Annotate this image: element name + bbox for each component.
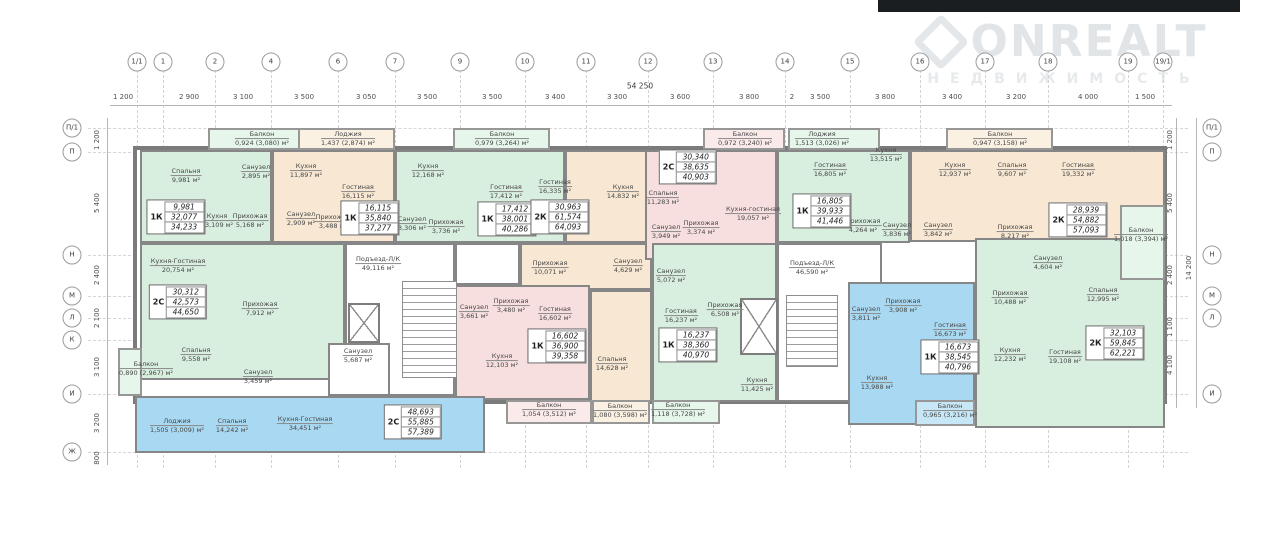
room-name: Прихожая [707, 301, 744, 310]
room-area: 1,437 (2,874) м² [321, 140, 375, 148]
room-area: 16,335 м² [538, 188, 572, 196]
apartment-type: 1К [922, 353, 938, 362]
apartment-type: 2С [386, 418, 401, 427]
area-value: 46,590 м² [789, 269, 835, 277]
room-label: Санузел3,836 м² [882, 221, 912, 239]
axis-right: Л [1203, 309, 1222, 328]
room-label: Санузел2,909 м² [286, 210, 316, 228]
room-area: 3,374 м² [683, 229, 720, 237]
room-label: Санузел4,629 м² [613, 257, 643, 275]
room-name: Прихожая [428, 218, 465, 227]
room-name: Лоджия [795, 130, 849, 139]
room-name: Санузел [397, 215, 427, 224]
room-label: Спальня12,995 м² [1087, 286, 1119, 304]
dim: 2 400 [1166, 265, 1174, 285]
room-label: Балкон1,018 (3,394) м² [1114, 226, 1168, 244]
dim: 2 [790, 93, 794, 101]
room-label: Санузел4,604 м² [1033, 254, 1063, 272]
room-name: Кухня [201, 212, 233, 221]
room-name: Кухня [486, 352, 518, 361]
room-name: Санузел [613, 257, 643, 266]
room-area: 12,232 м² [994, 356, 1026, 364]
room-name: Спальня [216, 417, 248, 426]
room-name: Кухня-гостиная [725, 205, 781, 214]
total-width: 54 250 [627, 82, 653, 91]
dim: 1 200 [1166, 130, 1174, 150]
room-label: Санузел5,687 м² [343, 347, 373, 365]
apartment-type: 2К [532, 213, 548, 222]
room-name: Спальня [171, 167, 202, 176]
room-name: Санузел [923, 221, 953, 230]
room-area: 3,908 м² [885, 307, 922, 315]
dimension-line [110, 105, 1172, 106]
room-area: 3,459 м² [243, 378, 273, 386]
room-name: Балкон [522, 401, 576, 410]
room-label: Прихожая8,217 м² [997, 223, 1034, 241]
dim: 3 300 [607, 93, 627, 101]
room-label: Кухня12,103 м² [486, 352, 518, 370]
room-name: Спальня [647, 189, 679, 198]
room-label: Санузел5,072 м² [656, 267, 686, 285]
room-area: 19,057 м² [725, 215, 781, 223]
room-label: Спальня11,283 м² [647, 189, 679, 207]
room-label: Прихожая10,488 м² [992, 289, 1029, 307]
room-label: Прихожая3,374 м² [683, 219, 720, 237]
dim: 5 400 [93, 193, 101, 213]
axis-left: Л [63, 309, 82, 328]
room-name: Балкон [1114, 226, 1168, 235]
apartment-stats: 2К28,93954,88257,093 [1048, 202, 1107, 237]
watermark-top-bar [878, 0, 1240, 12]
axis-right: М [1203, 287, 1222, 306]
room-area: 3,949 м² [651, 233, 681, 241]
room-name: Гостиная [341, 183, 375, 192]
room-area: 9,981 м² [171, 177, 202, 185]
room-area: 11,897 м² [290, 172, 322, 180]
axis-top: 2 [206, 53, 225, 72]
room-name: Санузел [343, 347, 373, 356]
room-label: Лоджия1,505 (3,009) м² [150, 417, 204, 435]
room-name: Прихожая [683, 219, 720, 228]
dim: 3 200 [1006, 93, 1026, 101]
room-label: Балкон0,979 (3,264) м² [475, 130, 529, 148]
room-name: Спальня [1087, 286, 1119, 295]
dim: 3 500 [294, 93, 314, 101]
room-label: Кухня-Гостиная20,754 м² [150, 257, 206, 275]
corridor [455, 243, 520, 285]
room-area: 2,909 м² [286, 220, 316, 228]
apartment-stats: 2К30,96361,57464,093 [530, 199, 589, 234]
dim: 3 200 [93, 413, 101, 433]
room-area: 10,071 м² [532, 269, 569, 277]
area-value: 49,116 м² [355, 265, 401, 273]
room-area: 16,805 м² [813, 171, 847, 179]
room-area: 1,513 (3,026) м² [795, 140, 849, 148]
axis-top: 6 [329, 53, 348, 72]
room-area: 1,018 (3,394) м² [1114, 236, 1168, 244]
room-area: 5,072 м² [656, 277, 686, 285]
room-name: Лоджия [321, 130, 375, 139]
axis-top: 17 [976, 53, 995, 72]
dim: 3 400 [942, 93, 962, 101]
room-name: Кухня-Гостиная [277, 415, 333, 424]
room-label: Кухня12,168 м² [412, 162, 444, 180]
apartment-stats: 2С30,34038,63540,903 [659, 149, 717, 184]
room-name: Санузел [882, 221, 912, 230]
room-label: Балкон1,118 (3,728) м² [651, 401, 705, 419]
dim: 3 800 [875, 93, 895, 101]
room-area: 20,754 м² [150, 267, 206, 275]
room-area: 1,118 (3,728) м² [651, 411, 705, 419]
axis-top: 9 [451, 53, 470, 72]
apartment-stats: 1К16,11535,84037,277 [340, 200, 399, 235]
room-label: Спальня9,558 м² [181, 346, 212, 364]
dim: 5 400 [1166, 193, 1174, 213]
room-area: 6,508 м² [707, 311, 744, 319]
dimension-line [107, 118, 108, 465]
room-label: Прихожая3,908 м² [885, 297, 922, 315]
room-area: 3,811 м² [851, 315, 881, 323]
room-name: Гостиная [933, 321, 967, 330]
apartment-stats: 1К16,23738,36040,970 [658, 327, 717, 362]
apartment-type: 1К [794, 207, 810, 216]
axis-top: 16 [911, 53, 930, 72]
room-name: Гостиная [538, 305, 572, 314]
room-area: 5,687 м² [343, 357, 373, 365]
apartment-stats: 1К17,41238,00140,286 [477, 201, 536, 236]
axis-left: П/1 [63, 119, 82, 138]
dim: 3 500 [482, 93, 502, 101]
dim: 800 [93, 451, 101, 464]
axis-top: 4 [262, 53, 281, 72]
room-name: Гостиная [1048, 348, 1082, 357]
room-area: 16,602 м² [538, 315, 572, 323]
room-name: Кухня [412, 162, 444, 171]
room-name: Прихожая [997, 223, 1034, 232]
room-name: Балкон [119, 360, 173, 369]
room-label: Балкон0,924 (3,080) м² [235, 130, 289, 148]
dim: 4 000 [1078, 93, 1098, 101]
room-label: Балкон0,890 (2,967) м² [119, 360, 173, 378]
room-label: Гостиная19,108 м² [1048, 348, 1082, 366]
dim: 3 400 [545, 93, 565, 101]
room-label: Балкон0,965 (3,216) м² [923, 402, 977, 420]
dimension-line [1196, 118, 1197, 408]
room-area: 7,912 м² [242, 310, 279, 318]
dim: 4 100 [1166, 355, 1174, 375]
room-area: 16,237 м² [664, 317, 698, 325]
room-area: 13,988 м² [861, 384, 893, 392]
room-label: Кухня13,988 м² [861, 374, 893, 392]
axis-right: И [1203, 385, 1222, 404]
room-label: Кухня13,109 м² [201, 212, 233, 230]
apartment-type: 2К [1050, 216, 1066, 225]
room-name: Кухня [607, 183, 639, 192]
room-label: Санузел3,306 м² [397, 215, 427, 233]
room-area: 1,505 (3,009) м² [150, 427, 204, 435]
room-name: Прихожая [885, 297, 922, 306]
room-area: 19,332 м² [1061, 171, 1095, 179]
stairwell-label: Подъезд-Л/К49,116 м² [355, 255, 401, 273]
room-name: Балкон [973, 130, 1027, 139]
staircase [402, 281, 457, 378]
room-name: Прихожая [493, 297, 530, 306]
room-name: Санузел [656, 267, 686, 276]
room-area: 4,629 м² [613, 267, 643, 275]
apartment-stats: 2С48,69355,88557,389 [384, 404, 442, 439]
room-area: 2,895 м² [241, 173, 271, 181]
axis-top: 18 [1039, 53, 1058, 72]
staircase [786, 295, 838, 367]
room-name: Гостиная [489, 183, 523, 192]
room-area: 13,109 м² [201, 222, 233, 230]
room-name: Кухня [861, 374, 893, 383]
dim: 3 800 [739, 93, 759, 101]
room-label: Спальня14,242 м² [216, 417, 248, 435]
room-name: Спальня [596, 355, 628, 364]
room-area: 0,972 (3,240) м² [718, 140, 772, 148]
room-label: Гостиная16,335 м² [538, 178, 572, 196]
room-label: Прихожая6,508 м² [707, 301, 744, 319]
room-label: Лоджия1,437 (2,874) м² [321, 130, 375, 148]
room-name: Санузел [286, 210, 316, 219]
axis-top: 12 [639, 53, 658, 72]
room-area: 12,103 м² [486, 362, 518, 370]
elevator-shaft [348, 303, 380, 343]
room-name: Санузел [1033, 254, 1063, 263]
dimension-line [1176, 118, 1177, 408]
axis-top: 15 [841, 53, 860, 72]
room-area: 8,217 м² [997, 233, 1034, 241]
apartment-type: 2С [151, 298, 166, 307]
room-area: 34,451 м² [277, 425, 333, 433]
room-area: 12,168 м² [412, 172, 444, 180]
room-label: Балкон1,080 (3,598) м² [593, 402, 647, 420]
room-area: 19,108 м² [1048, 358, 1082, 366]
room-label: Кухня-Гостиная34,451 м² [277, 415, 333, 433]
room-area: 14,628 м² [596, 365, 628, 373]
room-area: 0,979 (3,264) м² [475, 140, 529, 148]
room-name: Гостиная [813, 161, 847, 170]
room-name: Санузел [243, 368, 273, 377]
area-name: Подъезд-Л/К [789, 259, 835, 268]
axis-right: П/1 [1203, 119, 1222, 138]
room-name: Прихожая [232, 212, 269, 221]
watermark: ONREALT НЕДВИЖИМОСТЬ [888, 16, 1240, 87]
room-name: Балкон [235, 130, 289, 139]
room-label: Спальня14,628 м² [596, 355, 628, 373]
room-label: Гостиная16,673 м² [933, 321, 967, 339]
room-name: Кухня [870, 146, 902, 155]
apartment-stats: 1К16,60236,90039,358 [527, 328, 586, 363]
axis-left: К [63, 331, 82, 350]
apartment-stats: 1К16,67338,54540,796 [920, 339, 979, 374]
axis-top: 13 [704, 53, 723, 72]
room-area: 1,080 (3,598) м² [593, 412, 647, 420]
room-label: Кухня-гостиная19,057 м² [725, 205, 781, 223]
apartment-stats: 2К32,10359,84562,221 [1085, 325, 1144, 360]
dim: 3 100 [233, 93, 253, 101]
room-name: Санузел [459, 303, 489, 312]
room-label: Кухня12,232 м² [994, 346, 1026, 364]
apartment-stats: 1К9,98132,07734,233 [146, 199, 205, 234]
room-label: Прихожая7,912 м² [242, 300, 279, 318]
room-label: Кухня11,425 м² [741, 376, 773, 394]
room-name: Прихожая [992, 289, 1029, 298]
apartment-type: 1К [529, 342, 545, 351]
room-area: 10,488 м² [992, 299, 1029, 307]
room-label: Прихожая10,071 м² [532, 259, 569, 277]
room-name: Санузел [651, 223, 681, 232]
room-label: Балкон0,947 (3,158) м² [973, 130, 1027, 148]
total-height: 14 200 [1185, 256, 1193, 281]
room-name: Прихожая [242, 300, 279, 309]
room-area: 14,242 м² [216, 427, 248, 435]
dim: 1 200 [93, 130, 101, 150]
room-label: Гостиная16,237 м² [664, 307, 698, 325]
dim: 2 100 [93, 308, 101, 328]
room-area: 3,306 м² [397, 225, 427, 233]
room-name: Балкон [475, 130, 529, 139]
room-name: Кухня [741, 376, 773, 385]
room-name: Гостиная [538, 178, 572, 187]
apartment-stats: 2С30,31242,57344,650 [149, 284, 207, 319]
dim: 3 500 [417, 93, 437, 101]
axis-left: И [63, 385, 82, 404]
room-area: 17,412 м² [489, 193, 523, 201]
room-name: Прихожая [532, 259, 569, 268]
axis-right: П [1203, 143, 1222, 162]
axis-top: 7 [386, 53, 405, 72]
apartment-type: 2С [661, 163, 676, 172]
room-label: Прихожая5,168 м² [232, 212, 269, 230]
dim: 3 050 [356, 93, 376, 101]
room-label: Санузел3,459 м² [243, 368, 273, 386]
room-name: Балкон [593, 402, 647, 411]
dim: 1 500 [1135, 93, 1155, 101]
apartment-type: 1К [342, 214, 358, 223]
axis-left: Н [63, 246, 82, 265]
room-label: Кухня14,832 м² [607, 183, 639, 201]
room-area: 0,924 (3,080) м² [235, 140, 289, 148]
room-area: 0,965 (3,216) м² [923, 412, 977, 420]
watermark-subtext: НЕДВИЖИМОСТЬ [888, 71, 1240, 87]
room-area: 16,673 м² [933, 331, 967, 339]
room-area: 9,607 м² [997, 171, 1028, 179]
apartment-type: 2К [1087, 339, 1103, 348]
apartment-type: 1К [479, 215, 495, 224]
room-area: 14,832 м² [607, 193, 639, 201]
room-name: Лоджия [150, 417, 204, 426]
axis-top: 1 [154, 53, 173, 72]
room-name: Кухня [939, 161, 971, 170]
room-label: Прихожая3,480 м² [493, 297, 530, 315]
dim: 1 100 [1166, 317, 1174, 337]
room-label: Санузел3,949 м² [651, 223, 681, 241]
axis-left: П [63, 143, 82, 162]
room-name: Кухня [290, 162, 322, 171]
area-name: Подъезд-Л/К [355, 255, 401, 264]
room-label: Кухня12,937 м² [939, 161, 971, 179]
dim: 2 400 [93, 265, 101, 285]
axis-top: 19/1 [1154, 53, 1173, 72]
room-area: 13,515 м² [870, 156, 902, 164]
room-area: 0,890 (2,967) м² [119, 370, 173, 378]
axis-right: Н [1203, 246, 1222, 265]
room-name: Балкон [718, 130, 772, 139]
room-label: Балкон0,972 (3,240) м² [718, 130, 772, 148]
axis-top: 19 [1119, 53, 1138, 72]
axis-top: 11 [577, 53, 596, 72]
room-label: Санузел3,811 м² [851, 305, 881, 323]
room-area: 0,947 (3,158) м² [973, 140, 1027, 148]
room-label: Гостиная16,115 м² [341, 183, 375, 201]
room-label: Гостиная16,602 м² [538, 305, 572, 323]
axis-top: 10 [516, 53, 535, 72]
room-name: Спальня [181, 346, 212, 355]
elevator-shaft [740, 298, 778, 355]
room-area: 12,937 м² [939, 171, 971, 179]
apartment-stats: 1К16,80539,93341,446 [792, 193, 851, 228]
dim: 3 500 [810, 93, 830, 101]
room-area: 9,558 м² [181, 356, 212, 364]
room-label: Лоджия1,513 (3,026) м² [795, 130, 849, 148]
room-area: 11,425 м² [741, 386, 773, 394]
room-name: Кухня [994, 346, 1026, 355]
room-name: Балкон [651, 401, 705, 410]
room-area: 3,836 м² [882, 231, 912, 239]
floor-plan: ONREALT НЕДВИЖИМОСТЬ 1/1 1 2 4 6 7 9 10 … [0, 0, 1280, 538]
axis-top: 14 [776, 53, 795, 72]
axis-top: 1/1 [128, 53, 147, 72]
room-name: Санузел [851, 305, 881, 314]
dim: 3 100 [93, 357, 101, 377]
room-label: Гостиная19,332 м² [1061, 161, 1095, 179]
room-area: 12,995 м² [1087, 296, 1119, 304]
stairwell-label: Подъезд-Л/К46,590 м² [789, 259, 835, 277]
room-area: 3,736 м² [428, 228, 465, 236]
room-area: 4,604 м² [1033, 264, 1063, 272]
room-label: Санузел2,895 м² [241, 163, 271, 181]
room-label: Спальня9,607 м² [997, 161, 1028, 179]
room-label: Кухня13,515 м² [870, 146, 902, 164]
room-name: Кухня-Гостиная [150, 257, 206, 266]
room-label: Прихожая3,736 м² [428, 218, 465, 236]
room-area: 3,480 м² [493, 307, 530, 315]
room-label: Санузел3,842 м² [923, 221, 953, 239]
axis-left: М [63, 287, 82, 306]
room-area: 5,168 м² [232, 222, 269, 230]
room-name: Гостиная [664, 307, 698, 316]
room-area: 1,054 (3,512) м² [522, 411, 576, 419]
dim: 2 900 [179, 93, 199, 101]
room-name: Спальня [997, 161, 1028, 170]
room-label: Гостиная16,805 м² [813, 161, 847, 179]
dim: 1 200 [113, 93, 133, 101]
axis-left: Ж [63, 443, 82, 462]
room-label: Балкон1,054 (3,512) м² [522, 401, 576, 419]
room-label: Спальня9,981 м² [171, 167, 202, 185]
dim: 3 600 [670, 93, 690, 101]
room-name: Санузел [241, 163, 271, 172]
apartment-2k-64 [590, 290, 652, 402]
room-name: Балкон [923, 402, 977, 411]
room-area: 3,842 м² [923, 231, 953, 239]
room-label: Кухня11,897 м² [290, 162, 322, 180]
room-name: Гостиная [1061, 161, 1095, 170]
room-area: 11,283 м² [647, 199, 679, 207]
apartment-type: 1К [660, 341, 676, 350]
